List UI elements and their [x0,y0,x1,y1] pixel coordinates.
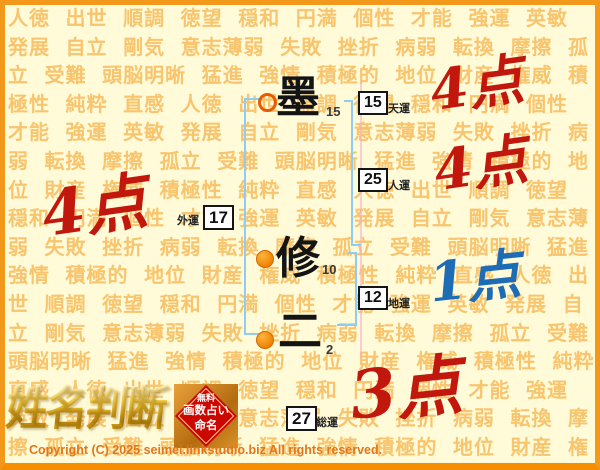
given-char-dot-icon [256,250,274,268]
gaiun-bracket-vertical [244,98,246,335]
jinun-label: 人運 [388,177,410,193]
surname-char-ring-icon [258,93,277,112]
souun-score: 3点 [347,351,465,428]
name-char-1-strokes: 15 [326,104,340,119]
souun-label: 総運 [316,414,338,430]
name-char-3-strokes: 2 [326,342,333,357]
jinun-score: 4点 [431,131,531,198]
guide-line [360,82,362,358]
name-char-2-strokes: 10 [322,262,336,277]
tenun-score: 4点 [427,51,527,118]
jinun-bracket-tick-bottom [351,244,361,246]
chiun-label: 地運 [388,295,410,311]
seimei-handan-result-page: 人徳 出世 順調 徳望 穏和 円満 個性 才能 強運 英敏 発展 自立 剛気 意… [0,0,600,470]
site-logo[interactable]: 姓名判断 [4,383,169,435]
tenun-label: 天運 [388,100,410,116]
chiun-value-box: 12 [358,286,388,310]
free-naming-stamp[interactable]: 無料 画数占い 命名 [174,384,238,448]
name-char-3: 二 [278,310,322,354]
jinun-bracket-vertical [351,100,353,246]
chiun-score: 1点 [426,246,523,309]
name-char-2: 修 [276,237,320,281]
chiun-bracket-tick-top [348,252,357,254]
copyright-text: Copyright (C) 2025 seimei.linkstudio.biz… [29,443,382,457]
souun-value-box: 27 [286,406,317,431]
stamp-line-1: 無料 [174,393,238,404]
tenun-value-box: 15 [358,91,388,115]
jinun-bracket-tick-top [344,100,353,102]
jinun-value-box: 25 [358,168,388,192]
stamp-line-3: 命名 [174,419,238,433]
given-char-dot-icon-2 [256,331,274,349]
gaiun-label: 外運 [177,212,199,228]
gaiun-score: 4点 [38,170,151,246]
stamp-text: 無料 画数占い 命名 [174,393,238,433]
gaiun-value-box: 17 [203,205,234,230]
name-char-1: 墨 [276,76,320,120]
chiun-bracket-tick-bottom [337,324,357,326]
stamp-line-2: 画数占い [174,404,238,418]
chiun-bracket-vertical [355,252,357,326]
